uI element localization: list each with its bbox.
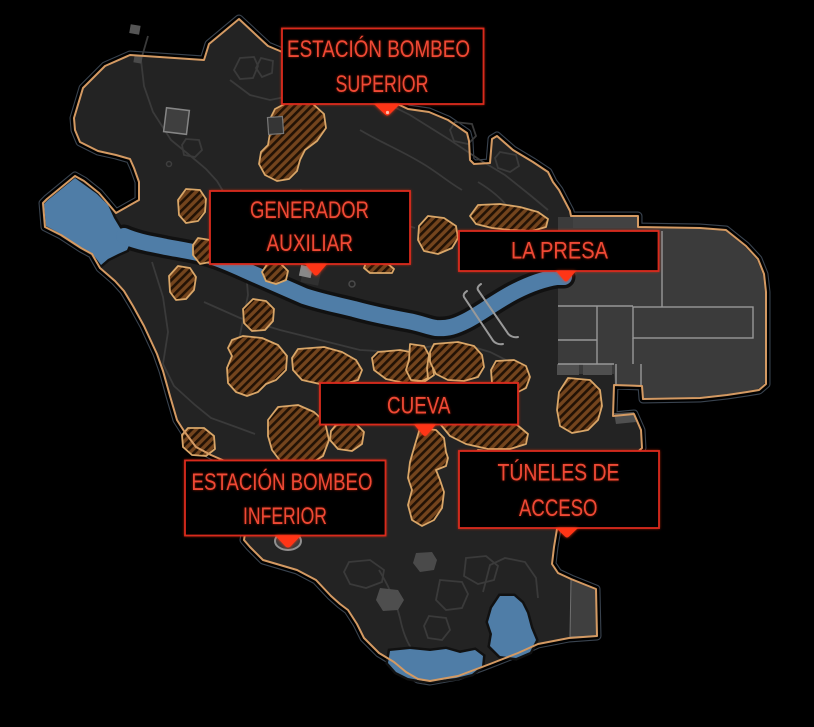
svg-text:TÚNELES DE: TÚNELES DE	[498, 460, 620, 487]
svg-text:ESTACIÓN BOMBEO: ESTACIÓN BOMBEO	[192, 469, 373, 496]
svg-text:AUXILIAR: AUXILIAR	[267, 230, 354, 257]
svg-text:INFERIOR: INFERIOR	[243, 503, 327, 530]
svg-text:ACCESO: ACCESO	[519, 495, 598, 522]
svg-text:LA PRESA: LA PRESA	[511, 238, 608, 265]
svg-text:ESTACIÓN BOMBEO: ESTACIÓN BOMBEO	[287, 36, 470, 63]
svg-text:SUPERIOR: SUPERIOR	[336, 71, 429, 98]
svg-text:GENERADOR: GENERADOR	[250, 197, 369, 224]
svg-text:CUEVA: CUEVA	[387, 393, 451, 420]
